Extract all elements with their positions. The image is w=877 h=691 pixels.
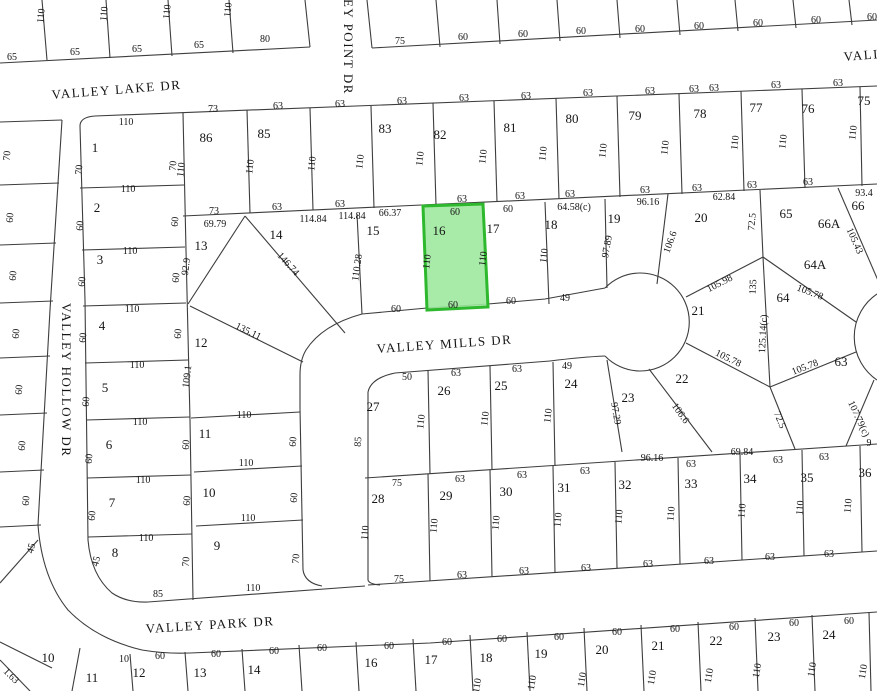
lot-number: 18	[545, 217, 558, 232]
dimension-label: 65	[132, 44, 142, 55]
lot-line	[185, 652, 188, 691]
dimension-label: 60	[75, 220, 87, 231]
dimension-label: 110	[241, 513, 256, 524]
dimension-label: 60	[77, 276, 89, 287]
lot-number: 34	[744, 471, 758, 486]
dimension-label: 107.79(c)	[845, 399, 871, 439]
lot-line	[641, 625, 644, 691]
lot-number: 10	[203, 485, 216, 500]
dimension-label: 1.63	[1, 666, 21, 686]
lot-number: 64A	[804, 257, 827, 272]
street-label: VALLEY MILLS DR	[376, 332, 513, 356]
lot-number: 66	[852, 198, 866, 213]
dimension-label: 63	[704, 556, 714, 567]
lot-line	[72, 648, 80, 691]
lot-number: 82	[434, 127, 447, 142]
lot-line	[860, 446, 862, 552]
lot-number: 33	[685, 476, 698, 491]
lot-line	[735, 0, 738, 31]
lot-number: 10	[42, 650, 55, 665]
lot-number: 8	[112, 545, 119, 560]
lot-number: 36	[859, 465, 873, 480]
lot-line	[372, 20, 877, 48]
dimension-label: 75	[394, 574, 404, 585]
dimension-label: 110	[35, 8, 47, 24]
dimension-label: 96.16	[637, 197, 660, 208]
lot-number: 17	[425, 652, 439, 667]
lot-line	[556, 98, 559, 199]
dimension-label: 63	[512, 364, 522, 375]
dimension-label: 110	[477, 149, 490, 165]
dimension-label: 63	[747, 180, 757, 191]
dimension-label: 110	[125, 304, 140, 315]
lot-number: 2	[94, 200, 101, 215]
dimension-label: 60	[450, 207, 460, 218]
lot-number: 9	[214, 538, 221, 553]
dimension-label: 63	[824, 549, 834, 560]
dimension-label: 135	[748, 279, 760, 295]
lot-line	[413, 639, 416, 691]
dimension-label: 60	[612, 627, 622, 638]
dimension-label: 60	[17, 440, 29, 451]
road-edge	[368, 373, 395, 392]
dimension-label: 110	[542, 408, 555, 424]
street-label: VALLEY HOLLOW DR	[59, 303, 74, 457]
lot-line	[678, 458, 680, 564]
dimension-label: 75	[395, 36, 405, 47]
dimension-label: 92.9	[180, 257, 193, 276]
dimension-label: 106.6	[662, 230, 680, 255]
dimension-label: 60	[173, 328, 185, 339]
lot-number: 30	[500, 484, 513, 499]
dimension-label: 110	[306, 156, 319, 172]
dimension-label: 60	[576, 26, 586, 37]
road-edge	[300, 314, 362, 408]
lot-number: 26	[438, 383, 452, 398]
lot-number: 22	[676, 371, 689, 386]
dimension-label: 110	[239, 458, 254, 469]
lot-number: 78	[694, 106, 707, 121]
street-label: VALLEY LAKE DR	[843, 39, 877, 64]
dimension-label: 49	[560, 293, 570, 304]
dimension-label: 60	[78, 332, 90, 343]
dimension-label: 63	[643, 559, 653, 570]
dimension-label: 63	[272, 202, 282, 213]
dimension-label: 60	[289, 492, 301, 503]
dimension-label: 60	[384, 641, 394, 652]
dimension-label: 63	[455, 474, 465, 485]
lot-number: 76	[802, 101, 816, 116]
lot-number: 85	[258, 126, 271, 141]
dimension-label: 63	[457, 570, 467, 581]
dimension-label: 110	[659, 140, 672, 156]
dimension-label: 50	[402, 372, 412, 383]
lot-line	[395, 361, 550, 373]
lot-number: 24	[565, 376, 579, 391]
lot-number: 35	[801, 470, 814, 485]
lot-number: 86	[200, 130, 214, 145]
dimension-label: 146.74	[275, 250, 302, 278]
dimension-label: 105.78	[790, 358, 820, 378]
dimension-label: 110	[428, 518, 440, 534]
dimension-label: 110	[751, 662, 764, 678]
dimension-label: 110	[490, 515, 502, 531]
dimension-label: 110	[806, 661, 819, 677]
dimension-label: 75	[392, 478, 402, 489]
dimension-label: 70	[291, 553, 303, 564]
dimension-label: 105.78	[795, 283, 825, 303]
dimension-label: 60	[155, 651, 165, 662]
dimension-label: 60	[5, 212, 17, 223]
lot-number: 3	[97, 252, 104, 267]
dimension-label: 63	[765, 552, 775, 563]
lot-line	[617, 96, 620, 197]
dimension-label: 63	[335, 99, 345, 110]
lot-line	[494, 101, 497, 202]
lot-line	[812, 615, 815, 691]
plat-map-page: 6565656580110110110110756060606060606060…	[0, 0, 877, 691]
lot-number: 7	[109, 495, 116, 510]
lot-line	[677, 0, 680, 35]
lot-number: 16	[433, 223, 447, 238]
lot-line	[0, 356, 50, 358]
dimension-label: 70	[74, 164, 86, 175]
lot-line	[0, 301, 53, 303]
lot-number: 19	[535, 646, 548, 661]
lot-line	[497, 0, 500, 44]
street-label: VALLEY POINT DR	[341, 0, 356, 95]
dimension-label: 110	[161, 4, 173, 20]
dimension-label: 63	[457, 194, 467, 205]
lot-line	[741, 91, 744, 191]
road-edge	[80, 116, 95, 126]
lot-line	[371, 106, 374, 208]
dimension-label: 73	[209, 206, 219, 217]
dimension-label: 110	[119, 117, 134, 128]
dimension-label: 105.78	[713, 348, 743, 370]
lot-number: 11	[86, 670, 99, 685]
dimension-label: 63	[273, 101, 283, 112]
dimension-label: 110	[857, 663, 870, 679]
dimension-label: 110	[729, 135, 742, 151]
lot-number: 20	[596, 642, 609, 657]
dimension-label: 60	[81, 396, 93, 407]
dimension-label: 110	[421, 254, 434, 270]
dimension-label: 60	[753, 18, 763, 29]
lot-number: 22	[710, 633, 723, 648]
lot-number: 15	[367, 223, 380, 238]
dimension-label: 110	[130, 360, 145, 371]
dimension-label: 110	[847, 125, 860, 141]
lot-number: 23	[768, 629, 781, 644]
dimension-label: 110	[359, 525, 371, 541]
dimension-label: 114.84	[338, 211, 365, 222]
dimension-label: 63	[645, 86, 655, 97]
dimension-label: 110	[477, 251, 490, 267]
dimension-label: 9	[867, 438, 872, 449]
lot-line	[760, 190, 763, 257]
dimension-label: 110	[736, 503, 748, 519]
lot-number: 16	[365, 655, 379, 670]
lot-number: 29	[440, 488, 453, 503]
lot-line	[755, 618, 758, 691]
dimension-label: 60	[269, 646, 279, 657]
dimension-label: 60	[391, 304, 401, 315]
dimension-label: 63	[686, 459, 696, 470]
dimension-label: 110	[354, 154, 367, 170]
dimension-label: 60	[694, 21, 704, 32]
dimension-label: 65	[7, 52, 17, 63]
dimension-label: 45	[25, 542, 38, 555]
dimension-label: 63	[689, 84, 699, 95]
dimension-label: 60	[87, 510, 99, 521]
dimension-label: 63	[833, 78, 843, 89]
dimension-label: 63	[521, 91, 531, 102]
dimension-label: 60	[506, 296, 516, 307]
dimension-label: 110	[415, 414, 428, 430]
lot-number: 11	[199, 426, 212, 441]
lot-number: 79	[629, 108, 642, 123]
dimension-label: 63	[519, 566, 529, 577]
lot-line	[242, 649, 245, 691]
street-label: VALLEY PARK DR	[145, 613, 275, 636]
dimension-label: 96.16	[641, 453, 664, 464]
lot-number: 28	[372, 491, 385, 506]
dimension-label: 63	[583, 88, 593, 99]
dimension-label: 110	[777, 134, 790, 150]
dimension-label: 64.58(c)	[557, 202, 591, 213]
dimension-label: 110	[246, 583, 261, 594]
dimension-label: 60	[181, 439, 193, 450]
lot-line	[869, 612, 871, 691]
lot-line	[698, 622, 701, 691]
dimension-label: 85	[353, 436, 365, 447]
lot-line	[557, 0, 560, 41]
lot-number: 64	[777, 290, 791, 305]
dimension-label: 65	[70, 47, 80, 58]
dimension-label: 60	[11, 328, 23, 339]
dimension-label: 109.1	[181, 365, 195, 389]
dimension-label: 60	[211, 649, 221, 660]
dimension-label: 60	[14, 384, 26, 395]
dimension-label: 63	[459, 93, 469, 104]
road-edge	[854, 294, 877, 380]
lot-number: 32	[619, 477, 632, 492]
dimension-label: 60	[789, 618, 799, 629]
dimension-label: 106.6	[669, 401, 691, 426]
dimension-label: 63	[517, 470, 527, 481]
lot-number: 81	[504, 120, 517, 135]
dimension-label: 60	[503, 204, 513, 215]
lot-line	[299, 645, 302, 691]
lot-number: 63	[835, 354, 848, 369]
dimension-label: 110	[613, 509, 625, 525]
road-edge	[550, 356, 605, 361]
dimension-label: 63	[773, 455, 783, 466]
dimension-label: 125.14(c)	[757, 314, 770, 353]
dimension-label: 60	[844, 616, 854, 627]
dimension-label: 63	[451, 368, 461, 379]
dimension-label: 110	[98, 6, 110, 22]
dimension-label: 135.11	[233, 321, 262, 343]
dimension-label: 60	[518, 29, 528, 40]
dimension-label: 110	[537, 146, 550, 162]
dimension-label: 63	[397, 96, 407, 107]
lot-line	[428, 370, 430, 474]
road-edge	[303, 570, 322, 586]
dimension-label: 63	[515, 191, 525, 202]
dimension-label: 60	[442, 637, 452, 648]
dimension-label: 110	[665, 506, 677, 522]
lot-line	[617, 0, 620, 38]
dimension-label: 70	[2, 150, 14, 161]
lot-line	[368, 551, 877, 585]
dimension-label: 60	[497, 634, 507, 645]
dimension-label: 66.37	[379, 208, 402, 219]
dimension-label: 80	[260, 34, 270, 45]
lot-line	[183, 184, 877, 216]
lot-number: 20	[695, 210, 708, 225]
dimension-label: 63	[335, 199, 345, 210]
dimension-label: 63	[709, 83, 719, 94]
lot-line	[679, 94, 682, 194]
dimension-label: 63	[581, 563, 591, 574]
street-label: VALLEY LAKE DR	[51, 77, 182, 102]
lot-line	[38, 120, 62, 525]
dimension-label: 97.89	[600, 235, 615, 259]
dimension-label: 60	[288, 436, 300, 447]
dimension-label: 63	[640, 185, 650, 196]
dimension-label: 110	[526, 674, 539, 690]
lot-number: 66A	[818, 216, 841, 231]
dimension-label: 72.5	[746, 213, 758, 231]
lot-line	[0, 243, 56, 245]
dimension-label: 60	[811, 15, 821, 26]
dimension-label: 45	[90, 555, 103, 568]
road-edge	[605, 273, 689, 371]
dimension-label: 72.5	[771, 410, 788, 430]
lot-line	[300, 408, 303, 570]
lot-number: 27	[367, 399, 381, 414]
dimension-label: 63	[565, 189, 575, 200]
dimension-label: 110	[703, 667, 716, 683]
dimension-label: 105.43	[844, 226, 865, 256]
dimension-label: 110	[646, 669, 659, 685]
lot-line	[0, 470, 44, 472]
dimension-label: 97.29	[608, 402, 623, 426]
lot-line	[356, 642, 359, 691]
dimension-label: 63	[803, 177, 813, 188]
lot-line	[0, 413, 47, 415]
dimension-label: 69.79	[204, 219, 227, 230]
lot-number: 77	[750, 100, 764, 115]
lot-line	[433, 103, 436, 205]
dimension-label: 65	[194, 40, 204, 51]
dimension-label: 60	[317, 643, 327, 654]
dimension-label: 110	[123, 246, 138, 257]
dimension-label: 110	[139, 533, 154, 544]
dimension-label: 85	[153, 589, 163, 600]
lot-number: 19	[608, 211, 621, 226]
dimension-label: 63	[692, 183, 702, 194]
lot-number: 83	[379, 121, 392, 136]
lot-number: 12	[133, 665, 146, 680]
dimension-label: 105.98	[705, 273, 734, 295]
lot-line	[305, 0, 310, 47]
dimension-label: 63	[580, 466, 590, 477]
dimension-label: 110	[244, 159, 257, 175]
lot-number: 21	[692, 303, 705, 318]
dimension-label: 114.84	[299, 214, 326, 225]
lot-number: 4	[99, 318, 106, 333]
dimension-label: 63	[771, 80, 781, 91]
dimension-label: 110	[479, 411, 492, 427]
lot-number: 1	[92, 140, 99, 155]
lot-number: 14	[248, 662, 262, 677]
dimension-label: 60	[84, 453, 96, 464]
lot-line	[0, 525, 41, 527]
lot-number: 65	[780, 206, 793, 221]
plat-map: 6565656580110110110110756060606060606060…	[0, 0, 877, 691]
dimension-label: 110	[794, 500, 806, 516]
lot-line	[0, 183, 59, 185]
dimension-label: 110	[133, 417, 148, 428]
lot-number: 75	[858, 93, 871, 108]
lot-number: 12	[195, 335, 208, 350]
dimension-label: 110.28	[350, 253, 365, 281]
dimension-label: 110	[414, 151, 427, 167]
dimension-label: 110	[237, 410, 252, 421]
lot-number: 13	[195, 238, 208, 253]
dimension-label: 70	[181, 556, 193, 567]
lot-number: 25	[495, 378, 508, 393]
dimension-label: 60	[458, 32, 468, 43]
dimension-label: 60	[21, 495, 33, 506]
dimension-label: 60	[554, 632, 564, 643]
lot-number: 18	[480, 650, 493, 665]
lot-number: 14	[270, 227, 284, 242]
lot-line	[367, 0, 372, 48]
lot-number: 6	[106, 437, 113, 452]
lot-line	[0, 120, 62, 122]
dimension-label: 63	[819, 452, 829, 463]
dimension-label: 60	[448, 300, 458, 311]
dimension-label: 60	[170, 216, 182, 227]
lot-number: 5	[102, 380, 109, 395]
dimension-label: 110	[175, 162, 188, 178]
dimension-label: 110	[552, 512, 564, 528]
dimension-label: 60	[867, 12, 877, 23]
lot-line	[793, 0, 796, 28]
dimension-label: 69.84	[731, 447, 754, 458]
lot-line	[436, 0, 440, 47]
dimension-label: 62.84	[713, 192, 736, 203]
lot-number: 21	[652, 638, 665, 653]
dimension-label: 110	[842, 498, 854, 514]
dimension-label: 60	[8, 270, 20, 281]
dimension-label: 110	[222, 2, 234, 18]
dimension-label: 49	[562, 361, 572, 372]
lot-number: 31	[558, 480, 571, 495]
dimension-label: 60	[635, 24, 645, 35]
lot-number: 23	[622, 390, 635, 405]
dimension-label: 110	[121, 184, 136, 195]
lot-line	[183, 113, 193, 600]
dimension-label: 110	[471, 677, 484, 691]
lot-number: 17	[487, 221, 501, 236]
lot-number: 13	[194, 665, 207, 680]
dimension-label: 110	[136, 475, 151, 486]
